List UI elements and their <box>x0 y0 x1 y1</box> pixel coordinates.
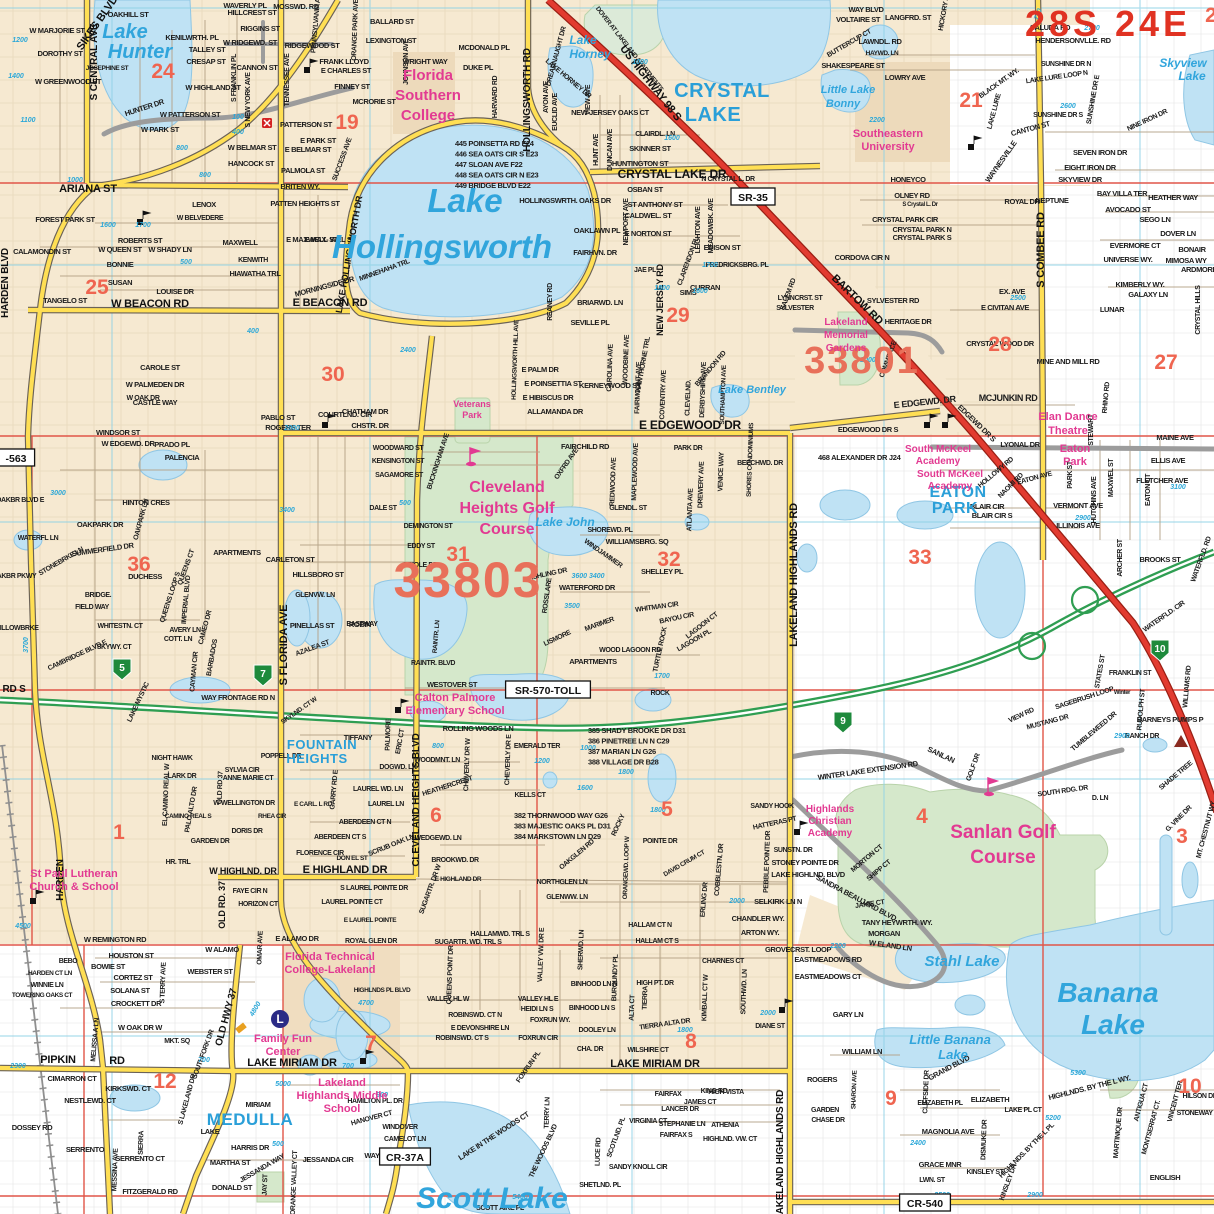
address-index-label: 449 BRIDGE BLVD E22 <box>455 181 531 190</box>
section-number: 33 <box>908 546 931 569</box>
major-road-label: S COMBEE RD <box>1035 212 1047 288</box>
street-label: WESTOVER ST <box>427 680 478 689</box>
pond <box>975 542 1025 638</box>
street-label: ARTON WY. <box>741 928 780 937</box>
poi-label: University <box>861 141 915 153</box>
street-label: LAUREL WD. LN <box>353 786 403 793</box>
street-label: DONALD ST <box>212 1183 253 1192</box>
poi-label: South McKeel <box>917 469 983 480</box>
major-road-label: RD S <box>2 684 26 695</box>
section-number: 1 <box>113 821 125 844</box>
poi-label: Lakeland <box>318 1077 366 1089</box>
address-index-label: 387 MARIAN LN G26 <box>588 747 656 756</box>
block-number: 4700 <box>357 1000 374 1007</box>
major-road-label: ARIANA ST <box>59 183 117 195</box>
street-label: ABERDEEN CT N <box>339 819 392 826</box>
street-label: APARTMENTS <box>569 657 617 666</box>
poi-label: Heights Golf <box>459 500 555 517</box>
poi-label: Theatre <box>1048 425 1088 437</box>
street-label: JAY ST <box>262 1173 270 1196</box>
street-label: WOODWARD ST <box>373 445 425 452</box>
street-label: ARDMORE <box>1181 265 1214 274</box>
street-label: FRANKLIN ST <box>1109 670 1152 677</box>
street-label: S LAUREL POINTE DR <box>340 885 408 892</box>
street-label: RANCH DR <box>1125 733 1159 740</box>
street-label: PALMOLA ST <box>281 166 326 175</box>
street-label: DEMINGTON ST <box>404 523 454 530</box>
street-label: WATERFL LN <box>18 535 59 542</box>
street-label: TERRY LN <box>543 1097 551 1129</box>
street-label: HANCOCK ST <box>228 159 275 168</box>
street-label: ELIZABETH <box>971 1095 1009 1104</box>
major-road-label: HARDEN BLVD <box>0 248 11 318</box>
school-icon <box>360 1058 366 1064</box>
street-label: MCDONALD PL <box>458 43 510 52</box>
block-number: 800 <box>176 145 188 152</box>
block-number: 1700 <box>654 673 670 680</box>
street-label: SEVILLE PL <box>571 318 611 327</box>
street-label: JAMES CT <box>684 1099 717 1106</box>
street-label: ALTA CT <box>629 994 637 1021</box>
street-label: W ALAMO <box>205 945 239 954</box>
street-label: BINHOOD LN N <box>571 981 618 988</box>
street-label: MAGNOLIA AVE <box>922 1127 975 1136</box>
street-label: HALLAMWD. TRL S <box>470 931 530 938</box>
block-number: 1600 <box>100 222 116 229</box>
street-label: OAKHILL ST <box>108 10 150 19</box>
street-label: SANDY KNOLL CIR <box>609 1164 668 1171</box>
street-label: E PALM DR <box>521 365 559 374</box>
street-label: LARK DR <box>168 773 197 780</box>
poi-label: Florida <box>403 67 454 84</box>
street-label: CRYSTAL PARK S <box>893 233 952 242</box>
street-label: E LAUREL POINTE <box>344 917 397 924</box>
block-number: 2400 <box>399 347 416 354</box>
street-label: OAKPARK DR <box>77 520 124 529</box>
street-label: MIRIAM <box>245 1100 270 1109</box>
street-label: NEW JERSEY OAKS CT <box>571 108 649 117</box>
section-number: 25 <box>85 276 109 299</box>
street-label: HONEYCO <box>890 175 926 184</box>
block-number: 700 <box>198 1057 210 1064</box>
poi-label: Elementary School <box>405 705 504 717</box>
major-road-label: S FLORIDA AVE <box>278 605 290 686</box>
section-number: 28 <box>988 333 1012 356</box>
address-index-label: 388 VILLAGE DR B28 <box>588 758 659 767</box>
street-label: DALE ST <box>369 505 397 512</box>
section-number: 2 <box>1205 4 1214 27</box>
street-label: FITZGERALD RD <box>122 1187 178 1196</box>
street-label: LYONAL DR <box>1000 440 1040 449</box>
street-label: ARCHER ST <box>1117 538 1124 576</box>
block-number: 2900 <box>1026 1192 1043 1199</box>
street-label: SELKIRK LN N <box>754 897 802 906</box>
street-label: DON EL ST <box>337 855 368 862</box>
street-label: E CIVITAN AVE <box>981 303 1029 312</box>
street-label: D. LN <box>1092 795 1109 802</box>
golf-green-icon <box>466 462 476 466</box>
block-number: 3700 <box>23 637 30 653</box>
major-road-label: CRYSTAL LAKE DR <box>618 167 727 181</box>
block-number: 1000 <box>632 59 648 66</box>
street-label: HIGH VISTA <box>708 1089 744 1096</box>
street-label: GLENDL. ST <box>609 505 648 512</box>
street-label: DOSSEY RD <box>12 1123 53 1132</box>
street-label: W BELMAR ST <box>228 143 277 152</box>
block-number: 1800 <box>618 769 634 776</box>
street-label: VOLTAIRE ST <box>836 15 881 24</box>
school-icon <box>794 829 800 835</box>
street-label: APARTMENTS <box>213 548 261 557</box>
street-label: LOUISE DR <box>156 287 194 296</box>
street-label: LWN. ST <box>919 1177 946 1184</box>
poi-label: College-Lakeland <box>284 964 375 976</box>
district-label: FOUNTAIN <box>287 737 357 752</box>
major-road-label: LAKELAND HIGHLANDS RD <box>775 1090 786 1214</box>
street-label: MEADOWBK. AVE <box>708 198 715 254</box>
street-label: SUGARTR. WD. TRL S <box>435 939 503 946</box>
block-number: 1100 <box>20 117 35 124</box>
poi-label: Southern <box>395 87 461 104</box>
street-label: WOOD LAGOON RD <box>599 647 661 654</box>
street-label: LAKE PL CT <box>1004 1107 1042 1114</box>
street-label: MCJUNKIN RD <box>979 393 1039 403</box>
street-label: AVOCADO ST <box>1105 205 1151 214</box>
poi-label: Memorial <box>824 330 868 341</box>
poi-label: Cleveland <box>469 479 545 496</box>
route-shield-label: -563 <box>5 453 26 465</box>
street-label: E DEVONSHIRE LN <box>451 1025 510 1032</box>
block-number: 400 <box>231 129 244 136</box>
block-number: 2600 <box>1059 103 1076 110</box>
street-label: WILSHIRE CT <box>627 1047 669 1054</box>
street-label: BINHOOD LN S <box>569 1005 616 1012</box>
address-index-label: 384 MARKSTOWN LN D29 <box>514 832 601 841</box>
block-number: 2900 <box>1113 733 1130 740</box>
water-label: Lake John <box>535 515 594 529</box>
street-label: SANDY HOOK <box>750 803 794 810</box>
street-label: GLENWW. LN <box>546 894 588 901</box>
street-label: DOROTHY ST <box>37 49 83 58</box>
water-label: Horney <box>569 47 612 61</box>
street-label: VENICE WAY <box>717 451 725 491</box>
poi-label: Park <box>1063 456 1088 468</box>
block-number: 3000 <box>50 490 66 497</box>
street-label: FOXRUN CIR <box>518 1035 558 1042</box>
poi-label: Florida Technical <box>285 951 375 963</box>
section-number: 12 <box>153 1070 176 1093</box>
block-number: 800 <box>432 743 444 750</box>
street-label: E HIBISCUS DR <box>523 393 575 402</box>
street-label: PARK DR <box>674 445 703 452</box>
water-label: Little Lake <box>821 84 875 96</box>
street-label: FAYE CIR N <box>233 888 268 895</box>
poi-label: Academy <box>928 481 973 492</box>
section-number: 5 <box>661 798 673 821</box>
poi-label: Highlands <box>806 804 855 815</box>
street-label: CORDOVA CIR N <box>835 253 890 262</box>
street-label: EASTMEADOWS CT <box>795 972 862 981</box>
pond <box>1182 862 1198 898</box>
street-label: EATON CT <box>1145 473 1152 506</box>
street-label: HUNT AVE <box>593 133 600 166</box>
street-label: E BELMAR ST <box>285 145 332 154</box>
street-label: LYNNCRST. ST <box>778 295 824 302</box>
street-label: LAUREL POINTE CT <box>321 899 383 906</box>
street-label: CRESAP ST <box>186 57 226 66</box>
street-label: DOVER LN <box>1160 229 1196 238</box>
pond <box>543 772 557 788</box>
street-label: COURTLND. CIR <box>318 410 373 419</box>
block-number: 2500 <box>1009 295 1026 302</box>
block-number: 2400 <box>909 1140 926 1147</box>
district-label: PARK <box>932 500 978 517</box>
block-number: 1600 <box>664 135 680 142</box>
street-label: S FRANKLIN PL <box>231 53 238 102</box>
street-label: MARTHA ST <box>210 1158 251 1167</box>
street-label: CHARNES CT <box>702 958 745 965</box>
street-label: FIELD WAY <box>75 604 110 611</box>
street-label: GARY LN <box>833 1010 864 1019</box>
route-shield-label: CR-37A <box>386 1152 424 1164</box>
street-label: TOWERING OAKS CT <box>12 992 73 999</box>
street-label: BARNEYS PUMPS P <box>1137 715 1204 724</box>
street-label: CAMELOT LN <box>384 1136 426 1143</box>
block-number: 5000 <box>275 1081 291 1088</box>
block-number: 1400 <box>8 73 24 80</box>
street-label: HARRIS DR <box>231 1143 270 1152</box>
block-number: 500 <box>180 259 192 266</box>
street-label: WINNIE LN <box>31 982 64 989</box>
street-label: ATHENIA <box>711 1122 739 1129</box>
street-label: OLD RD 37 <box>216 771 224 805</box>
street-label: HIGHLND. VW. CT <box>703 1136 758 1143</box>
poi-label: School <box>324 1103 361 1115</box>
street-label: HIGHLNDS PL BLVD <box>354 987 411 994</box>
street-label: RHEA CIR <box>258 813 287 820</box>
street-label: HIGH PT. DR <box>636 980 674 987</box>
poi-label: Calton Palmore <box>415 692 496 704</box>
street-label: FAIRFAX <box>655 1091 682 1098</box>
poi-label: Christian <box>808 816 851 827</box>
water-label: Hollingsworth <box>332 228 552 265</box>
block-number: 2000 <box>759 1010 776 1017</box>
block-number: 2000 <box>728 898 745 905</box>
block-number: 1600 <box>577 785 593 792</box>
street-label: KIRKSWD. CT <box>105 1084 151 1093</box>
street-label: WHITESTN. CT <box>98 623 144 630</box>
street-label: WINDOVER <box>382 1124 418 1131</box>
block-number: 800 <box>199 172 211 179</box>
street-label: NEPTUNE <box>1035 196 1068 205</box>
poi-label: Gardens <box>826 343 867 354</box>
street-label: AYON AVE <box>543 80 550 113</box>
street-label: W REMINGTON RD <box>84 935 147 944</box>
water-label: Lake <box>569 33 597 47</box>
poi-label: Academy <box>808 828 853 839</box>
street-label: LENOX <box>192 200 216 209</box>
street-label: SYLVIA CIR <box>225 767 260 774</box>
street-label: MORGAN <box>868 929 900 938</box>
street-label: RIGGINS ST <box>240 24 280 33</box>
street-label: BONNIE <box>107 260 134 269</box>
major-road-label: HARDEN <box>55 859 66 901</box>
street-label: PABLO ST <box>261 413 296 422</box>
street-label: BAY VILLA TER <box>1097 189 1148 198</box>
street-label: CRYSTAL HILLS <box>1195 285 1202 335</box>
street-label: SHERWD. LN <box>577 929 585 970</box>
street-label: CALAMONDIN ST <box>13 247 72 256</box>
street-label: E HIGHLAND DR <box>435 876 482 883</box>
street-label: DOOLEY LN <box>578 1027 615 1034</box>
street-label: CRYSTAL PARK CIR <box>872 215 939 224</box>
section-number: 19 <box>335 111 358 134</box>
block-number: 3100 <box>1170 484 1186 491</box>
street-label: PATTEN HEIGHTS ST <box>270 199 340 208</box>
street-label: PINELLAS ST <box>290 621 335 630</box>
water-label: Bonny <box>826 98 861 110</box>
block-number: 1000 <box>67 177 83 184</box>
street-label: ROGERS <box>807 1075 838 1084</box>
street-label: BRIARWD. LN <box>577 298 623 307</box>
street-label: LANCER DR <box>661 1106 699 1113</box>
major-road-label: E HIGHLAND DR <box>303 864 388 876</box>
block-number: 2300 <box>9 1063 26 1070</box>
street-label: ROBINSWD. CT N <box>448 1012 502 1019</box>
street-label: CLEVELND. <box>684 379 692 416</box>
street-label: VIRGINIA CT <box>629 1118 668 1125</box>
street-label: SERRENTO <box>66 1145 105 1154</box>
street-label: WEBSTER ST <box>187 967 233 976</box>
street-label: OAKBR BLVD E <box>0 497 45 504</box>
street-label: CIMARRON CT <box>48 1074 98 1083</box>
street-label: CANNON ST <box>237 63 279 72</box>
street-label: LUCE RD <box>595 1137 603 1166</box>
section-number: 32 <box>657 548 680 571</box>
pond <box>820 490 870 520</box>
pond <box>797 544 817 572</box>
poi-label: Highlands Middle <box>296 1090 387 1102</box>
street-label: W PALMEDEN DR <box>126 380 185 389</box>
street-label: DUNCAN AVE <box>607 128 614 171</box>
street-label: W PARK ST <box>141 125 180 134</box>
school-icon <box>395 707 401 713</box>
school-icon <box>942 422 948 428</box>
address-index-label: 445 POINSETTA RD F24 <box>455 139 535 148</box>
street-label: SIERRA <box>138 1130 146 1155</box>
street-label: GLENVW. LN <box>295 592 335 599</box>
street-label: W OAK DR W <box>118 1023 163 1032</box>
address-index-label: 385 SHADY BROOKE DR D31 <box>588 726 686 735</box>
golf-green-icon <box>984 792 994 796</box>
street-label: ROLLING WOODS LN <box>443 724 514 733</box>
street-label: NIGHT HAWK <box>151 755 192 762</box>
street-label: W QUEEN ST <box>98 245 142 254</box>
block-number: 1200 <box>12 37 28 44</box>
street-label: OMAR AVE <box>256 930 264 965</box>
street-label: GROVECRST. LOOP <box>765 945 831 954</box>
street-label: TANY HEYWRTH. WY. <box>862 918 933 927</box>
poi-label: Southeastern <box>853 128 924 140</box>
street-label: EASTWAY <box>346 621 378 628</box>
street-label: LANGFRD. ST <box>885 13 932 22</box>
poi-label: South McKeel <box>905 444 971 455</box>
address-index-label: 447 SLOAN AVE F22 <box>455 160 523 169</box>
street-label: FOREST PARK ST <box>35 215 95 224</box>
poi-label: Veterans <box>453 399 491 409</box>
block-number: 1200 <box>534 758 550 765</box>
block-number: 5300 <box>1070 1070 1086 1077</box>
street-label: GARDEN <box>811 1107 839 1114</box>
street-label: SAGAMORE ST <box>375 472 424 479</box>
water-label: Stahl Lake <box>924 953 999 970</box>
street-label: EIGHT IRON DR <box>1064 163 1116 172</box>
poi-label: Eaton <box>1060 443 1091 455</box>
street-label: COTT. LN <box>164 636 193 643</box>
poi-label: Center <box>266 1046 302 1058</box>
street-label: HILLCREST ST <box>228 8 278 17</box>
street-label: CAROLE ST <box>140 363 181 372</box>
street-label: SHETLND. PL <box>579 1182 622 1189</box>
street-label: BRITEN WY. <box>280 182 320 191</box>
major-road-label: PIPKIN <box>40 1054 76 1066</box>
street-label: TANGELO ST <box>43 296 88 305</box>
block-number: 3500 <box>564 603 580 610</box>
street-label: PALENCIA <box>165 453 201 462</box>
poi-label: Family Fun <box>254 1033 312 1045</box>
street-label: CHANDLER WY. <box>732 914 785 923</box>
street-label: WINDSOR ST <box>96 428 141 437</box>
block-number: 500 <box>399 500 411 507</box>
street-label: ANNE MARIE CT <box>223 775 275 782</box>
block-number: 1700 <box>135 222 151 229</box>
street-label: MAXWEL ST <box>1108 458 1115 497</box>
road-w-beacon-rd <box>28 310 350 311</box>
map-canvas[interactable]: OAKHILL STWAVERLY PLMOSSWD. RDHILLCREST … <box>0 0 1214 1214</box>
street-label: CARLETON ST <box>266 555 316 564</box>
street-label: KENSINGTON ST <box>372 458 425 465</box>
street-label: SKINNER ST <box>629 144 671 153</box>
street-label: WILLOWBRKE <box>0 625 39 632</box>
street-label: W RIDGEWD. ST <box>223 38 278 47</box>
poi-label: Church & School <box>29 881 118 893</box>
section-number: 3 <box>1176 825 1188 848</box>
street-label: EVERMORE CT <box>1110 241 1161 250</box>
street-label: LEIGHTON AVE <box>695 206 702 254</box>
block-number: 1700 <box>702 262 718 269</box>
section-number: 8 <box>685 1030 697 1053</box>
street-label: PRADO PL <box>154 440 190 449</box>
street-label: SKYVIEW DR <box>1058 175 1102 184</box>
school-icon <box>924 422 930 428</box>
pond <box>955 995 985 1015</box>
street-label: FAIRHVN. DR <box>573 248 618 257</box>
section-number: 4 <box>916 805 928 828</box>
street-label: ABERDEEN CT S <box>314 834 367 841</box>
section-number: 30 <box>321 363 344 386</box>
street-label: MOSSWD. RD <box>273 2 320 11</box>
street-label: BEECHWD. DR <box>737 460 783 467</box>
street-label: E CARL. L RD <box>294 801 333 808</box>
block-number: 400 <box>246 328 259 335</box>
street-label: WAY BLVD <box>848 5 884 14</box>
street-label: VALLEY HL E <box>518 996 559 1003</box>
street-label: CHASE DR <box>811 1117 845 1124</box>
major-road-label: W HIGHLND. DR <box>209 866 277 876</box>
street-label: HOUSTON ST <box>108 951 154 960</box>
street-label: HALLAM CT N <box>628 922 672 929</box>
street-label: EMERALD TER <box>514 743 561 750</box>
